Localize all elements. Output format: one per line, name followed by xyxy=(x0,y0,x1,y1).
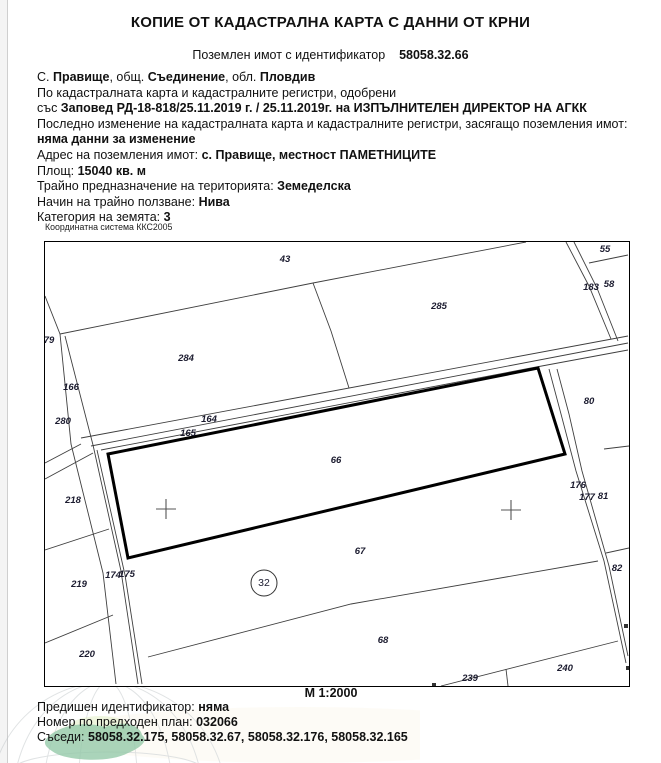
cadastral-map: 32 4328528455581837916628016416566802181… xyxy=(44,241,630,687)
info-line-1: С. Правище, общ. Съединение, обл. Пловди… xyxy=(37,70,647,86)
map-scale-label: М 1:2000 xyxy=(270,686,392,700)
parcel-label-175: 175 xyxy=(119,569,136,580)
parcel-label-240: 240 xyxy=(556,663,574,674)
parcel-label-239: 239 xyxy=(461,673,479,684)
property-info-block: С. Правище, общ. Съединение, обл. Пловди… xyxy=(37,70,647,226)
parcel-label-285: 285 xyxy=(430,301,448,312)
parcel-label-166: 166 xyxy=(63,382,80,393)
page-edge-line xyxy=(7,0,8,763)
footer-info-block: Предишен идентификатор: нямаНомер по пре… xyxy=(37,700,647,746)
parcel-label-220: 220 xyxy=(78,649,96,660)
cadastral-map-drawing: 32 4328528455581837916628016416566802181… xyxy=(45,242,629,686)
info-line-4: Последно изменение на кадастралната карт… xyxy=(37,117,647,133)
parcel-label-67: 67 xyxy=(355,546,366,557)
info-line-7: Площ: 15040 кв. м xyxy=(37,164,647,180)
page-edge-strip xyxy=(0,0,7,763)
parcel-label-284: 284 xyxy=(177,353,195,364)
coordinate-system-label: Координатна система ККС2005 xyxy=(45,222,172,232)
parcel-label-68: 68 xyxy=(378,635,389,646)
info-line-8: Трайно предназначение на територията: Зе… xyxy=(37,179,647,195)
parcel-label-165: 165 xyxy=(180,428,197,439)
info-line-9: Начин на трайно ползване: Нива xyxy=(37,195,647,211)
parcel-label-80: 80 xyxy=(584,396,595,407)
circled-parcel-number: 32 xyxy=(258,577,270,589)
survey-cross-marks xyxy=(156,499,521,520)
info-line-2: По кадастралната карта и кадастралните р… xyxy=(37,86,647,102)
subtitle-prefix: Поземлен имот с идентификатор xyxy=(192,48,385,62)
document-subtitle: Поземлен имот с идентификатор 58058.32.6… xyxy=(0,48,661,62)
parcel-label-219: 219 xyxy=(70,579,88,590)
document-title: КОПИЕ ОТ КАДАСТРАЛНА КАРТА С ДАННИ ОТ КР… xyxy=(0,14,661,31)
parcel-label-66: 66 xyxy=(331,455,342,466)
parcel-label-82: 82 xyxy=(612,563,623,574)
cadastral-document-page: { "page": { "title": "КОПИЕ ОТ КАДАСТРАЛ… xyxy=(0,0,661,763)
parcel-label-58: 58 xyxy=(604,279,615,290)
info-line-6: Адрес на поземления имот: с. Правище, ме… xyxy=(37,148,647,164)
footer-line-1: Предишен идентификатор: няма xyxy=(37,700,647,715)
parcel-label-79: 79 xyxy=(45,335,55,346)
parcel-label-43: 43 xyxy=(279,254,291,265)
footer-line-2: Номер по предходен план: 032066 xyxy=(37,715,647,730)
parcel-label-176: 176 xyxy=(570,480,587,491)
info-line-5: няма данни за изменение xyxy=(37,132,647,148)
parcel-label-164: 164 xyxy=(201,414,218,425)
parcel-label-280: 280 xyxy=(54,416,72,427)
parcel-label-177: 177 xyxy=(579,492,596,503)
parcel-label-218: 218 xyxy=(64,495,82,506)
footer-line-3: Съседи: 58058.32.175, 58058.32.67, 58058… xyxy=(37,730,647,745)
parcel-label-183: 183 xyxy=(583,282,600,293)
parcel-label-81: 81 xyxy=(598,491,609,502)
parcel-identifier: 58058.32.66 xyxy=(399,48,469,62)
info-line-3: със Заповед РД-18-818/25.11.2019 г. / 25… xyxy=(37,101,647,117)
parcel-label-55: 55 xyxy=(600,244,611,255)
